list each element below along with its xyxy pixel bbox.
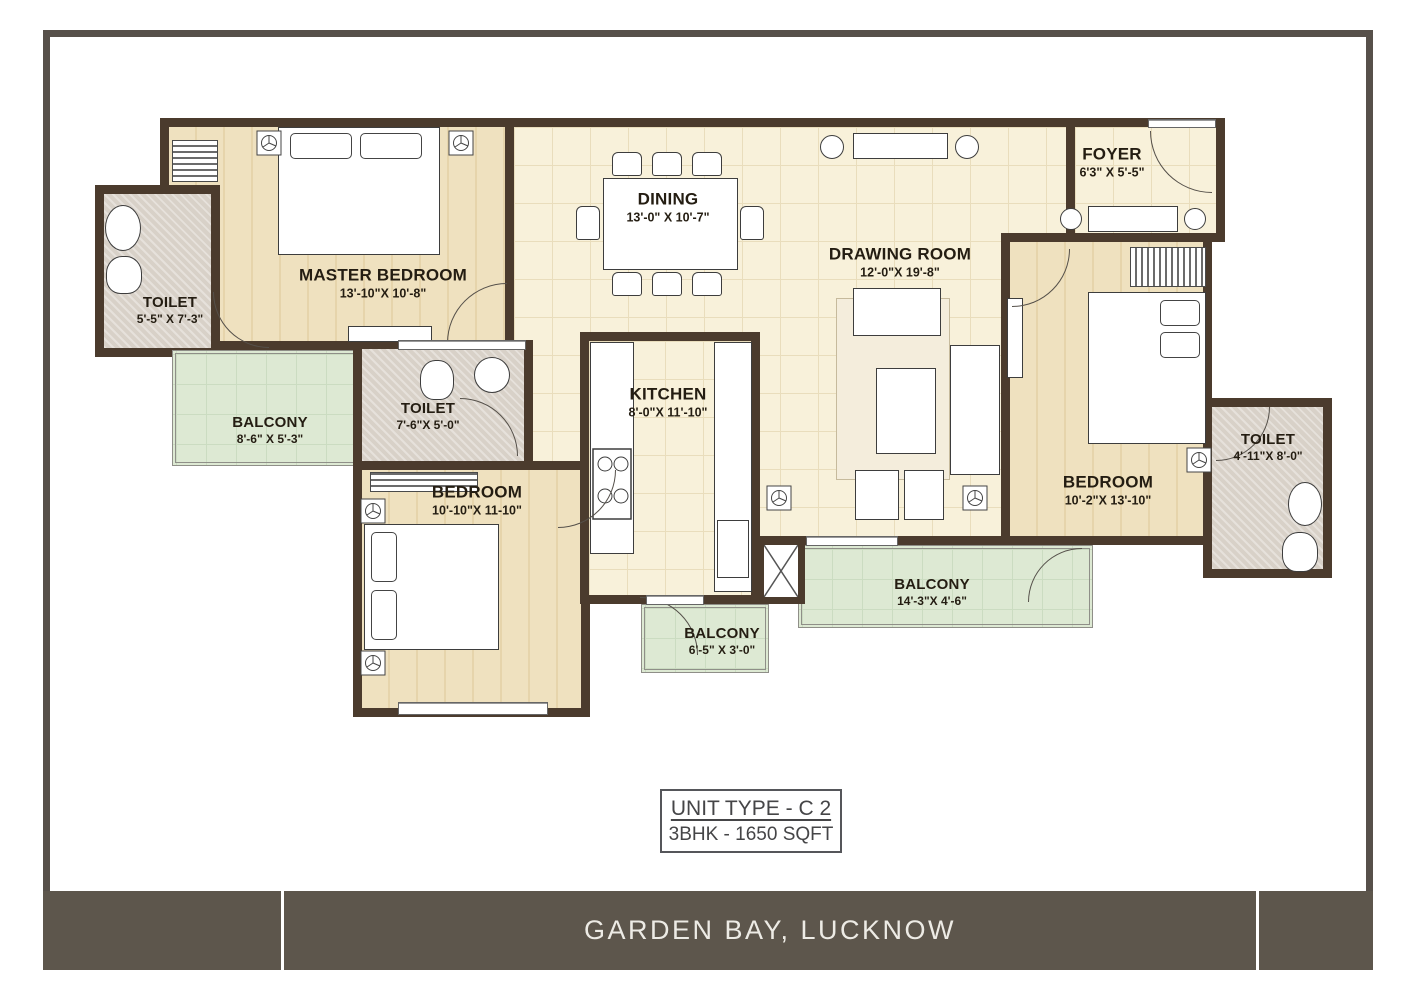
wardrobe-icon <box>172 140 218 182</box>
pillow-icon <box>1160 332 1200 358</box>
stool-icon <box>1060 208 1082 230</box>
label-toilet-2: TOILET7'-6"X 5'-0" <box>396 400 459 432</box>
washbasin-icon <box>105 205 141 251</box>
washbasin-icon <box>474 357 510 393</box>
chair-icon <box>692 152 722 176</box>
ceiling-fan-icon <box>962 485 988 511</box>
sofa-icon <box>950 345 1000 475</box>
room-balcony-master <box>172 350 362 466</box>
footer-separator <box>1256 891 1259 970</box>
chair-icon <box>612 152 642 176</box>
wardrobe-icon <box>1130 247 1206 287</box>
ceiling-fan-icon <box>1186 447 1212 473</box>
sofa-icon <box>853 288 941 336</box>
duct-cross-icon <box>764 545 798 597</box>
frame-border-left <box>43 30 50 891</box>
window-icon <box>398 702 548 715</box>
pillow-icon <box>371 590 397 640</box>
label-balcony-master: BALCONY8'-6" X 5'-3" <box>232 414 308 446</box>
unit-type-line1: UNIT TYPE - C 2 <box>662 797 840 821</box>
chair-icon <box>740 206 764 240</box>
label-drawing-room: DRAWING ROOM12'-0"X 19'-8" <box>829 245 971 280</box>
window-icon <box>398 340 526 350</box>
sink-icon <box>717 520 749 578</box>
chair-icon <box>652 272 682 296</box>
label-balcony-rear: BALCONY14'-3"X 4'-6" <box>894 576 970 608</box>
wc-icon <box>106 256 142 294</box>
frame-border-right <box>1366 30 1373 891</box>
chair-icon <box>692 272 722 296</box>
window-icon <box>646 595 704 605</box>
chair-icon <box>652 152 682 176</box>
tv-console-icon <box>853 133 948 159</box>
ceiling-fan-icon <box>360 650 386 676</box>
service-duct <box>757 538 805 604</box>
center-table-icon <box>876 368 936 454</box>
dresser-icon <box>1007 298 1023 378</box>
armchair-icon <box>855 470 899 520</box>
ceiling-fan-icon <box>256 130 282 156</box>
window-icon <box>806 536 898 546</box>
label-toilet-master: TOILET5'-5" X 7'-3" <box>137 294 203 326</box>
label-toilet-3: TOILET4'-11"X 8'-0" <box>1233 431 1302 463</box>
frame-border-top <box>43 30 1373 37</box>
label-foyer: FOYER6'3" X 5'-5" <box>1079 145 1144 180</box>
wc-icon <box>420 360 454 400</box>
label-bedroom-3: BEDROOM10'-2"X 13'-10" <box>1063 473 1153 508</box>
label-master-bedroom: MASTER BEDROOM13'-10"X 10'-8" <box>299 266 467 301</box>
unit-type-box: UNIT TYPE - C 2 3BHK - 1650 SQFT <box>660 789 842 853</box>
stool-icon <box>955 135 979 159</box>
ceiling-fan-icon <box>360 498 386 524</box>
wc-icon <box>1282 532 1318 572</box>
console-table-icon <box>1088 206 1178 232</box>
ceiling-fan-icon <box>766 485 792 511</box>
unit-type-line2: 3BHK - 1650 SQFT <box>662 824 840 846</box>
chair-icon <box>576 206 600 240</box>
stool-icon <box>820 135 844 159</box>
ceiling-fan-icon <box>448 130 474 156</box>
chair-icon <box>612 272 642 296</box>
door-opening <box>1148 119 1216 128</box>
pillow-icon <box>360 133 422 159</box>
washbasin-icon <box>1288 482 1322 526</box>
stool-icon <box>1184 208 1206 230</box>
label-bedroom-2: BEDROOM10'-10"X 11-10" <box>432 483 522 518</box>
project-title: GARDEN BAY, LUCKNOW <box>284 891 1256 970</box>
label-dining: DINING13'-0" X 10'-7" <box>626 190 709 225</box>
floor-plan-page: MASTER BEDROOM13'-10"X 10'-8" TOILET5'-5… <box>0 0 1416 1000</box>
pillow-icon <box>290 133 352 159</box>
label-kitchen: KITCHEN8'-0"X 11'-10" <box>629 385 708 420</box>
pillow-icon <box>1160 300 1200 326</box>
armchair-icon <box>904 470 944 520</box>
pillow-icon <box>371 532 397 582</box>
label-balcony-kitchen: BALCONY6'-5" X 3'-0" <box>684 625 760 657</box>
